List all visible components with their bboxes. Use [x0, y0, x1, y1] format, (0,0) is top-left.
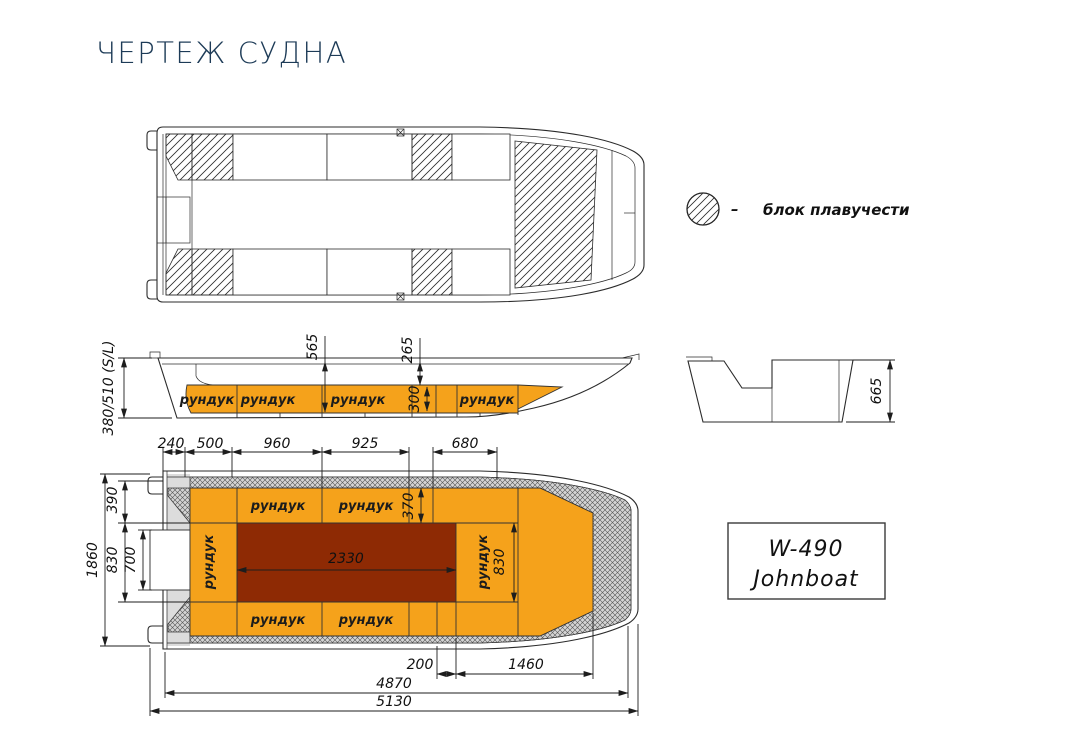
locker-label: рундук: [250, 499, 307, 514]
svg-text:200: 200: [407, 657, 434, 673]
svg-text:300: 300: [407, 386, 423, 413]
locker-label: рундук: [338, 613, 395, 628]
svg-text:4870: 4870: [376, 676, 412, 692]
dim-665: 665: [846, 360, 895, 422]
dim-265: 265: [400, 337, 420, 385]
svg-text:700: 700: [123, 547, 139, 574]
buoyancy-block: [166, 249, 192, 295]
svg-text:265: 265: [400, 337, 416, 364]
transom-rail-cap: [686, 357, 712, 361]
transom-section-view: 665: [686, 357, 895, 422]
buoyancy-block: [192, 249, 233, 295]
legend-label: блок плавучести: [763, 201, 910, 219]
side-profile-view: рундук рундук рундук рундук 380/510 (S/L…: [101, 334, 639, 436]
locker-label: рундук: [202, 534, 217, 591]
stern-bracket-bottom: [147, 280, 157, 299]
bow-rail-tip: [622, 354, 639, 360]
model-label-box: W-490 Johnboat: [728, 523, 885, 599]
svg-text:380/510 (S/L): 380/510 (S/L): [101, 341, 117, 436]
locker-label: рундук: [338, 499, 395, 514]
top-plan-view: [147, 127, 644, 302]
motor-recess: [150, 530, 190, 590]
buoyancy-hatch-fill: [687, 193, 719, 225]
model-name: W-490: [769, 537, 844, 562]
svg-text:500: 500: [197, 436, 224, 452]
transom-shape: [688, 360, 853, 422]
seat-panel: [327, 134, 412, 180]
svg-text:2330: 2330: [328, 551, 364, 567]
svg-text:960: 960: [264, 436, 291, 452]
stern-locker-front: [196, 364, 214, 385]
svg-text:665: 665: [869, 378, 885, 405]
svg-text:370: 370: [401, 493, 417, 520]
seat-panel: [233, 134, 327, 180]
locker-label: рундук: [330, 393, 387, 408]
drawing-page: ЧЕРТЕЖ СУДНА: [0, 0, 1069, 752]
svg-text:1860: 1860: [85, 542, 101, 578]
boat-drawing-canvas: – блок плавучести рундук рунд: [0, 0, 1069, 752]
locker-label: рундук: [250, 613, 307, 628]
buoyancy-block: [192, 134, 233, 180]
dim-transom-height: 380/510 (S/L): [101, 341, 172, 436]
svg-text:1460: 1460: [508, 657, 544, 673]
locker-label: рундук: [476, 534, 491, 591]
svg-text:5130: 5130: [376, 694, 412, 710]
legend-dash: –: [731, 200, 739, 218]
seat-panel: [452, 134, 510, 180]
locker-label: рундук: [240, 393, 297, 408]
buoyancy-block: [166, 134, 192, 180]
svg-text:390: 390: [105, 487, 121, 514]
locker-label: рундук: [459, 393, 516, 408]
stern-rail-cap: [150, 352, 160, 358]
stern-bracket-top: [148, 477, 163, 494]
locker-label: рундук: [179, 393, 236, 408]
bow-buoyancy-block: [515, 141, 597, 288]
legend: – блок плавучести: [687, 193, 910, 225]
svg-text:830: 830: [105, 547, 121, 574]
svg-text:680: 680: [452, 436, 479, 452]
svg-text:830: 830: [492, 549, 508, 576]
svg-text:565: 565: [305, 334, 321, 361]
seat-panel: [452, 249, 510, 295]
seat-panel: [233, 249, 327, 295]
seat-panel: [327, 249, 412, 295]
model-type: Johnboat: [749, 567, 859, 592]
buoyancy-block: [412, 249, 452, 295]
stern-bracket-bottom: [148, 626, 163, 643]
stern-bracket-top: [147, 131, 157, 150]
motor-recess-top-view: [157, 197, 190, 243]
buoyancy-block: [412, 134, 452, 180]
interior-plan-view: рундук рундук рундук рундук рундук рунду…: [85, 436, 638, 716]
svg-text:925: 925: [352, 436, 379, 452]
svg-text:240: 240: [158, 436, 185, 452]
